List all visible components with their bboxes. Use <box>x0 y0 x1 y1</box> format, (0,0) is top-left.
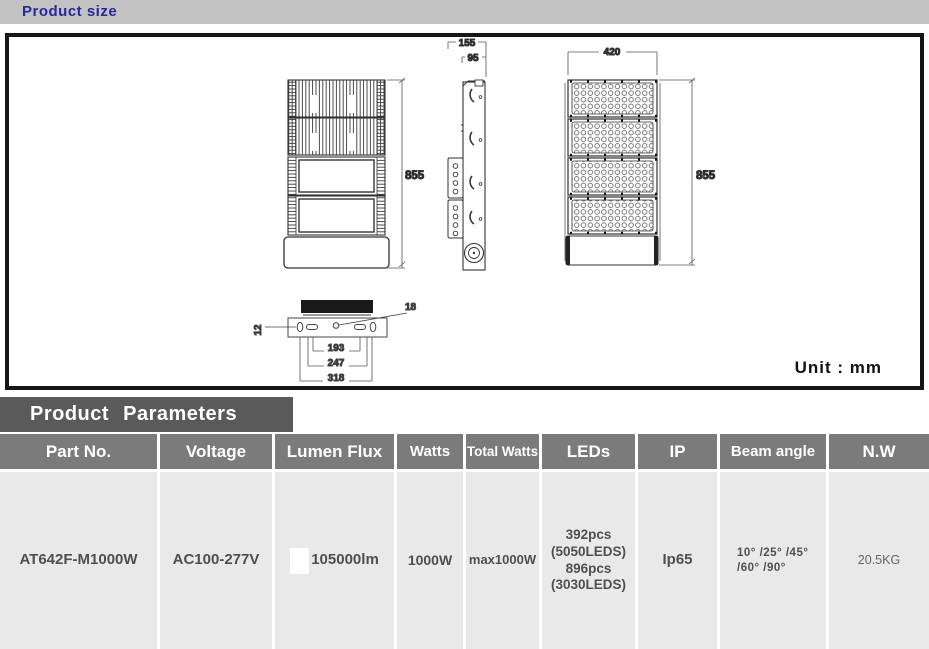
col-header-voltage: Voltage <box>160 434 272 469</box>
cell-nw: 20.5KG <box>829 472 929 649</box>
product-parameters-header: Product Parameters <box>0 397 293 432</box>
leds-line-3: 896pcs <box>566 561 612 578</box>
dim-mount-outer: 318 <box>328 373 345 384</box>
dim-side-inner-depth: 95 <box>467 53 479 64</box>
col-header-nw: N.W <box>829 434 929 469</box>
unit-label: Unit : mm <box>795 358 882 378</box>
dim-side-depth: 155 <box>459 38 476 49</box>
product-drawing: 855 155 95 <box>9 37 920 386</box>
beam-angle-line-2: /60° /90° <box>737 561 809 575</box>
col-header-ip: IP <box>638 434 717 469</box>
dim-back-height: 855 <box>405 170 425 182</box>
parameters-table: Part No. Voltage Lumen Flux Watts Total … <box>0 434 929 649</box>
dim-front-height: 855 <box>696 170 716 182</box>
cell-total-watts: max1000W <box>466 472 539 649</box>
col-header-leds: LEDs <box>542 434 635 469</box>
cell-watts: 1000W <box>397 472 463 649</box>
dim-bracket-plate: 12 <box>253 324 264 336</box>
leds-line-2: (5050LEDS) <box>551 544 626 561</box>
lumen-flux-marker <box>290 548 309 574</box>
dim-hole: 18 <box>405 302 417 313</box>
mount-view-drawing: 12 18 193 247 318 <box>253 300 417 384</box>
col-header-watts: Watts <box>397 434 463 469</box>
cell-lumen-flux: 105000lm <box>275 472 394 649</box>
col-header-part-no: Part No. <box>0 434 157 469</box>
cell-part-no: AT642F-M1000W <box>0 472 157 649</box>
dim-mount-inner: 193 <box>328 343 345 354</box>
dim-mount-mid: 247 <box>328 358 345 369</box>
product-size-header: Product size <box>0 0 929 24</box>
cell-voltage: AC100-277V <box>160 472 272 649</box>
leds-line-4: (3030LEDS) <box>551 577 626 594</box>
back-view-drawing: 855 <box>284 78 427 268</box>
cell-beam-angle: 10° /25° /45° /60° /90° <box>720 472 826 649</box>
front-view-drawing: 420 <box>565 45 719 265</box>
col-header-beam-angle: Beam angle <box>720 434 826 469</box>
side-view-drawing: 155 95 <box>448 37 486 270</box>
col-header-total-watts: Total Watts <box>466 434 539 469</box>
col-header-lumen-flux: Lumen Flux <box>275 434 394 469</box>
beam-angle-line-1: 10° /25° /45° <box>737 546 809 560</box>
lumen-flux-value: 105000lm <box>311 551 379 570</box>
product-drawing-panel: 855 155 95 <box>5 33 924 390</box>
dim-front-width: 420 <box>604 47 621 58</box>
cell-ip: Ip65 <box>638 472 717 649</box>
leds-line-1: 392pcs <box>566 527 612 544</box>
cell-leds: 392pcs (5050LEDS) 896pcs (3030LEDS) <box>542 472 635 649</box>
